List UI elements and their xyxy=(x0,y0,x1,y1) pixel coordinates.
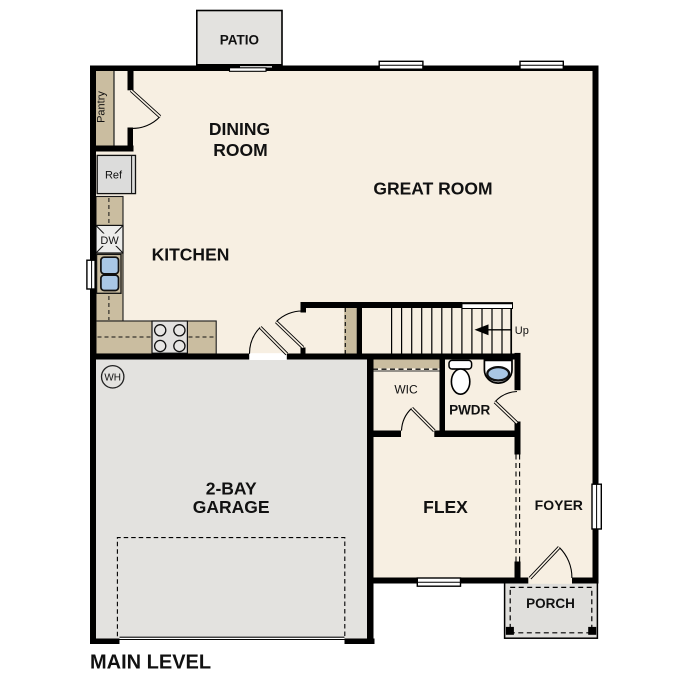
svg-text:ROOM: ROOM xyxy=(213,140,267,160)
svg-text:PORCH: PORCH xyxy=(526,596,575,611)
svg-text:GARAGE: GARAGE xyxy=(193,497,270,517)
svg-text:WH: WH xyxy=(104,373,121,384)
svg-text:Pantry: Pantry xyxy=(96,91,108,123)
svg-text:DINING: DINING xyxy=(209,119,270,139)
svg-text:WIC: WIC xyxy=(394,383,418,397)
svg-text:DW: DW xyxy=(100,235,119,247)
svg-text:2-BAY: 2-BAY xyxy=(206,479,257,499)
svg-text:FOYER: FOYER xyxy=(535,497,583,513)
svg-text:PWDR: PWDR xyxy=(449,403,490,418)
svg-text:Up: Up xyxy=(515,325,529,337)
svg-text:Ref: Ref xyxy=(105,170,123,182)
svg-text:KITCHEN: KITCHEN xyxy=(152,245,230,265)
svg-text:PATIO: PATIO xyxy=(220,33,259,48)
svg-text:GREAT ROOM: GREAT ROOM xyxy=(373,179,492,199)
svg-text:MAIN LEVEL: MAIN LEVEL xyxy=(90,652,211,674)
svg-text:FLEX: FLEX xyxy=(423,497,468,517)
